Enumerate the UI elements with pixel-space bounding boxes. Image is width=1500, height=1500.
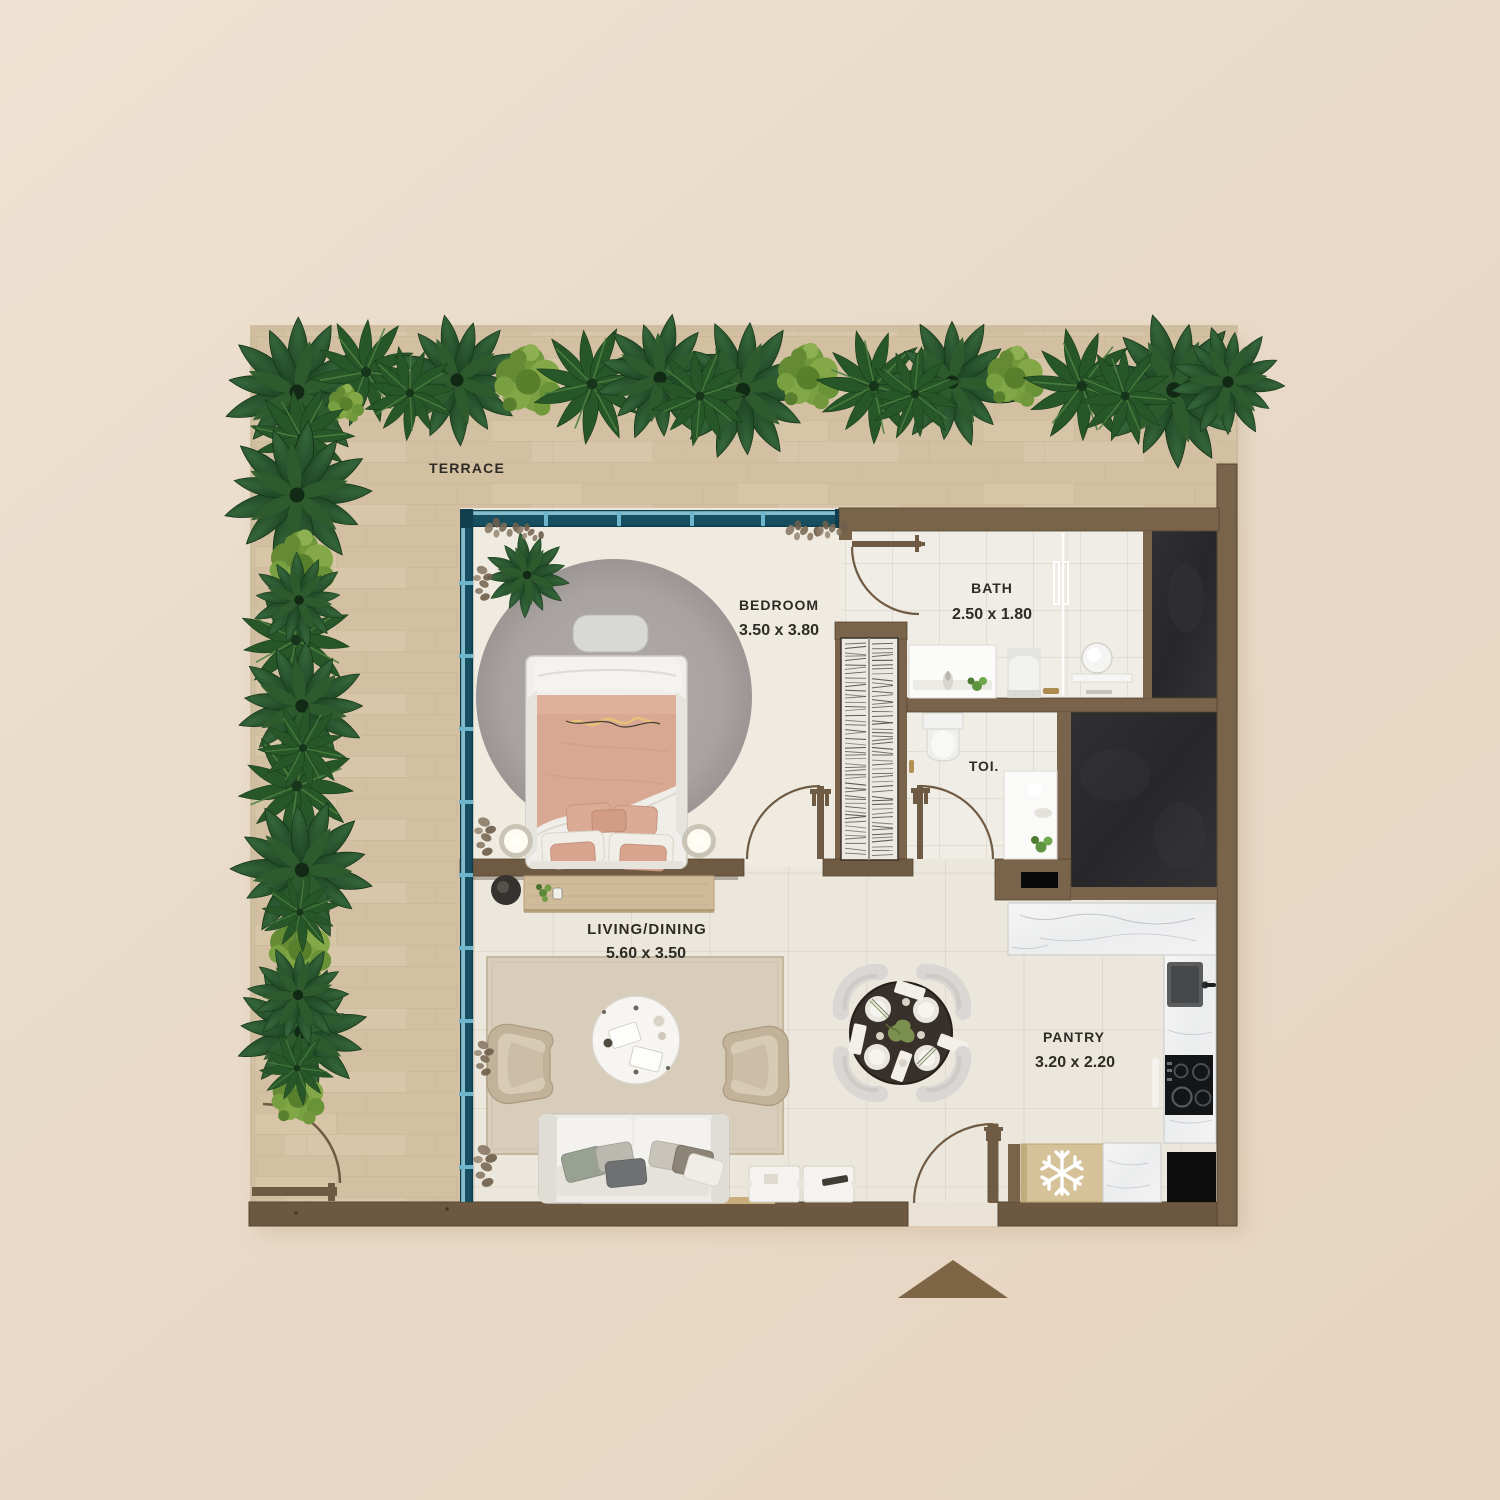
svg-text:LIVING/DINING: LIVING/DINING	[587, 921, 707, 938]
svg-text:BATH: BATH	[971, 580, 1013, 596]
svg-text:BEDROOM: BEDROOM	[739, 597, 819, 613]
svg-text:3.20 x 2.20: 3.20 x 2.20	[1035, 1054, 1115, 1071]
svg-text:3.50 x 3.80: 3.50 x 3.80	[739, 622, 819, 639]
svg-text:TOI.: TOI.	[969, 758, 999, 774]
svg-text:TERRACE: TERRACE	[429, 460, 505, 476]
svg-text:2.50 x 1.80: 2.50 x 1.80	[952, 606, 1032, 623]
svg-text:5.60 x 3.50: 5.60 x 3.50	[606, 945, 686, 962]
svg-text:PANTRY: PANTRY	[1043, 1029, 1105, 1045]
